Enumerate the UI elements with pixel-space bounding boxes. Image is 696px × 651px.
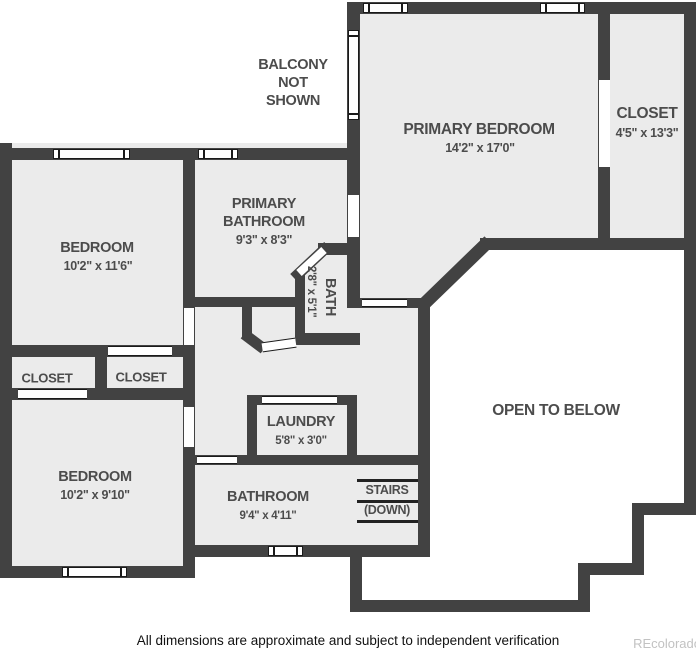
stairs-label: STAIRS <box>365 483 408 497</box>
door-closet-left <box>18 389 87 399</box>
wall-bath-top <box>318 243 360 255</box>
primary-closet-label: CLOSET <box>616 105 677 123</box>
wall-hall-stub <box>242 307 252 337</box>
bathroom-dims: 9'4" x 4'11" <box>240 510 297 522</box>
primary-bathroom-dims: 9'3" x 8'3" <box>236 233 292 247</box>
bedroom-upper-label: BEDROOM <box>60 240 134 256</box>
primary-bedroom-label: PRIMARY BEDROOM <box>403 121 554 139</box>
watermark-text: REcolorado <box>633 636 696 651</box>
window-bathroom <box>268 546 303 556</box>
closet-left-label: CLOSET <box>22 371 73 386</box>
wall-bath-bottom <box>295 333 360 345</box>
bathroom-label: BATHROOM <box>227 489 309 505</box>
wall-bathroom-bottom <box>183 545 428 557</box>
bedroom-lower-dims: 10'2" x 9'10" <box>60 488 130 502</box>
stair-tread <box>357 520 418 523</box>
wall-primary-suite-bottom <box>480 238 696 250</box>
stairs-direction: (DOWN) <box>364 503 410 517</box>
door-bedroom-upper <box>184 308 194 345</box>
wall-bottom <box>350 600 590 612</box>
window-bedroom-upper <box>53 149 130 159</box>
laundry-dims: 5'8" x 3'0" <box>275 435 326 447</box>
window-bedroom-lower <box>62 567 127 577</box>
balcony-note: BALCONY NOT SHOWN <box>251 56 335 110</box>
primary-bedroom-dims: 14'2" x 17'0" <box>445 141 515 155</box>
bedroom-lower-label: BEDROOM <box>58 469 132 485</box>
floor-plan: BALCONY NOT SHOWN PRIMARY BEDROOM 14'2" … <box>0 0 696 651</box>
wall-right <box>684 2 696 515</box>
door-laundry <box>262 396 337 404</box>
bath-dims: 2'8" x 5'1" <box>305 266 317 317</box>
door-bathroom <box>197 456 237 464</box>
open-to-below-label: OPEN TO BELOW <box>492 402 620 420</box>
wall-corridor-right <box>418 298 430 557</box>
door-primary-bath-to-bedroom <box>348 195 359 237</box>
window-primary-bedroom-1 <box>363 3 408 13</box>
bath-label: BATH <box>322 278 338 316</box>
balcony-door <box>348 30 359 120</box>
bedroom-upper-dims: 10'2" x 11'6" <box>64 259 133 273</box>
window-primary-bathroom <box>198 149 238 159</box>
closet-right-label: CLOSET <box>116 370 167 385</box>
primary-closet-dims: 4'5" x 13'3" <box>616 126 679 140</box>
stair-tread <box>357 479 418 482</box>
wall-primary-bath-bottom <box>183 297 305 307</box>
door-primary-closet <box>599 80 610 167</box>
door-bedroom-lower <box>184 407 194 447</box>
door-closet-right <box>108 346 172 356</box>
primary-bathroom-label: PRIMARY BATHROOM <box>204 195 324 231</box>
door-primary-bedroom-entry <box>362 299 407 307</box>
laundry-label: LAUNDRY <box>267 414 335 430</box>
wall-left <box>0 143 12 578</box>
window-primary-bedroom-2 <box>540 3 585 13</box>
floor-primary-bedroom-lower <box>354 244 428 304</box>
disclaimer-text: All dimensions are approximate and subje… <box>0 633 696 648</box>
